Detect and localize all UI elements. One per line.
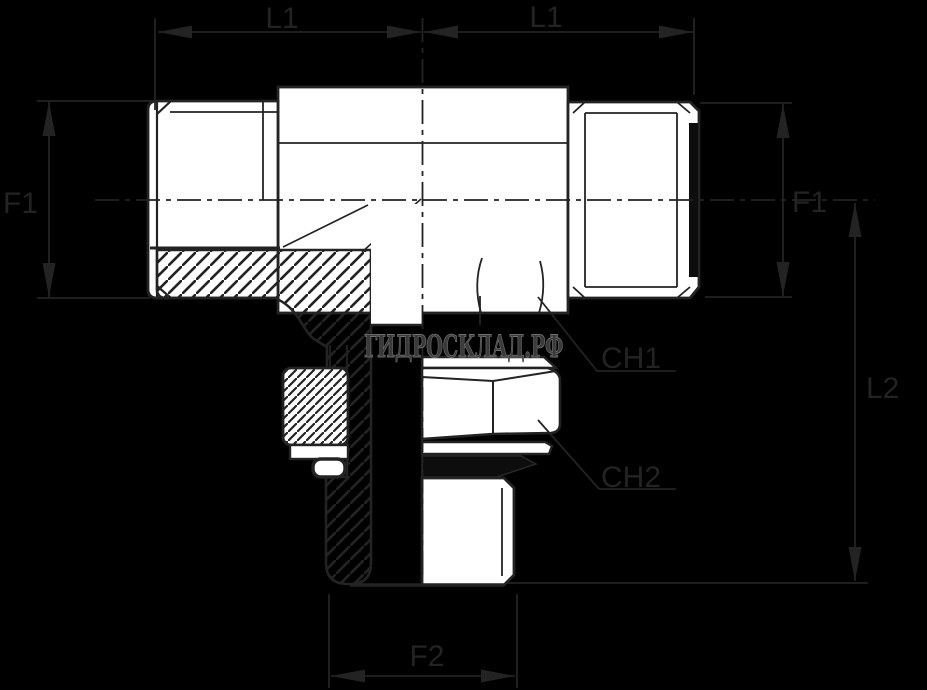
callout-label-ch2: CH2 bbox=[601, 461, 661, 494]
arrowhead bbox=[659, 26, 693, 39]
dimension-l1-right: L1 bbox=[424, 1, 694, 95]
dim-label-f1-right: F1 bbox=[792, 186, 827, 219]
callout-label-ch1: CH1 bbox=[601, 342, 661, 375]
arrowhead bbox=[43, 263, 56, 297]
arrowhead bbox=[777, 262, 790, 296]
technical-drawing-canvas: L1 L1 F1 F1 L2 F2 bbox=[0, 0, 927, 690]
locknut-assembly-external bbox=[422, 357, 560, 477]
tee-fitting-drawing: L1 L1 F1 F1 L2 F2 bbox=[0, 0, 927, 690]
arrowhead bbox=[481, 670, 515, 683]
arrowhead bbox=[331, 670, 365, 683]
arrowhead bbox=[43, 102, 56, 136]
dim-label-l2: L2 bbox=[866, 372, 899, 405]
locknut-section-hatch bbox=[283, 368, 348, 445]
captive-seal-black bbox=[422, 456, 536, 477]
arrowhead bbox=[777, 104, 790, 138]
dim-label-l1-left: L1 bbox=[265, 2, 298, 35]
hex-washer bbox=[422, 442, 552, 454]
dim-label-f1-left: F1 bbox=[3, 187, 38, 220]
dimension-f2: F2 bbox=[329, 594, 517, 688]
arrowhead bbox=[158, 26, 192, 39]
arrowhead bbox=[849, 203, 862, 237]
arrowhead bbox=[849, 547, 862, 581]
seal-blob-section bbox=[313, 459, 345, 477]
vertical-bore bbox=[371, 204, 422, 325]
dim-label-f2: F2 bbox=[409, 640, 444, 673]
dim-label-l1-right: L1 bbox=[529, 1, 562, 34]
bottom-port-outline bbox=[422, 478, 514, 585]
washer-section bbox=[290, 445, 348, 459]
arrowhead bbox=[424, 26, 458, 39]
arrowhead bbox=[387, 26, 421, 39]
watermark-text: ГИДРОСКЛАД.РФ bbox=[364, 329, 563, 365]
bottom-port bbox=[350, 478, 514, 585]
